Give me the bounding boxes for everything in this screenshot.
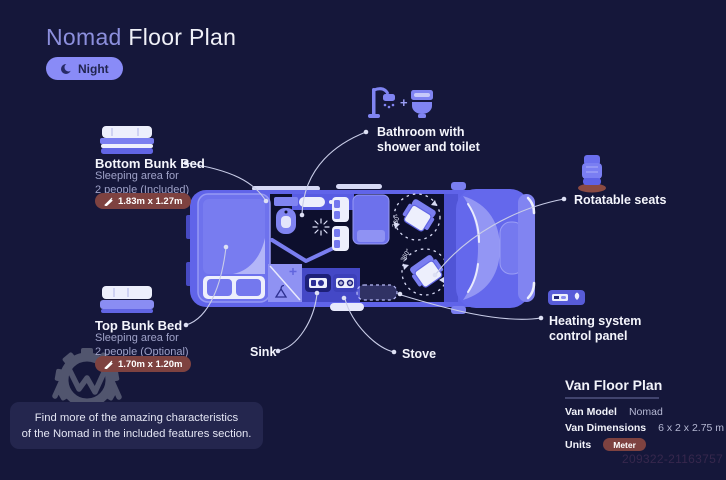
van-dimensions-value: 6 x 2 x 2.75 m <box>658 422 724 434</box>
bunk-bed-icon <box>98 125 156 155</box>
units-badge: Meter <box>603 438 646 451</box>
van-dimensions-label: Van Dimensions <box>565 422 646 434</box>
info-panel-title: Van Floor Plan <box>565 377 662 393</box>
stove-unit <box>333 274 357 292</box>
top-bunk-dimensions-badge: 1.70m x 1.20m <box>95 356 191 372</box>
stove-label: Stove <box>402 347 436 362</box>
ruler-icon <box>104 360 113 369</box>
sink-label: Sink <box>250 345 276 360</box>
bottom-bunk-dimensions-badge: 1.83m x 1.27m <box>95 193 191 209</box>
bathroom-label-line2: shower and toilet <box>377 140 480 155</box>
van-model-label: Van Model <box>565 406 617 418</box>
plus-icon: + <box>400 95 408 110</box>
page-title-accent: Nomad <box>46 24 122 50</box>
page-title: Nomad Floor Plan <box>46 24 236 51</box>
bottom-bunk-dimensions: 1.83m x 1.27m <box>118 196 182 207</box>
note-line2: of the Nomad in the included features se… <box>22 426 252 442</box>
bottom-bunk-title: Bottom Bunk Bed <box>95 156 205 171</box>
night-mode-toggle[interactable]: Night <box>46 57 123 80</box>
info-row-units: Units Meter <box>565 438 646 451</box>
bed-area <box>198 194 270 302</box>
top-bunk-dimensions: 1.70m x 1.20m <box>118 359 182 370</box>
top-bunk-desc-line1: Sleeping area for <box>95 332 189 346</box>
bunk-bed-icon <box>98 284 156 314</box>
sink-unit <box>305 274 331 292</box>
van-cab <box>444 182 535 314</box>
watermark-id-text: 209322-21163757 <box>622 452 723 466</box>
heating-panel-outline <box>357 285 397 300</box>
note-line1: Find more of the amazing characteristics <box>35 410 238 426</box>
heating-panel-icon <box>548 290 585 305</box>
toilet-icon <box>411 90 433 118</box>
heating-label-line2: control panel <box>549 329 641 344</box>
ruler-icon <box>104 197 113 206</box>
van-illustration: 360° 360° <box>186 182 535 314</box>
van-model-value: Nomad <box>629 406 663 418</box>
bathroom-label-line1: Bathroom with <box>377 125 480 140</box>
page: 360° 360° <box>0 0 726 480</box>
night-mode-label: Night <box>78 62 109 76</box>
rotatable-seats-label: Rotatable seats <box>574 193 666 208</box>
page-title-rest: Floor Plan <box>122 24 237 50</box>
bottom-bunk-desc-line1: Sleeping area for <box>95 170 189 184</box>
info-row-van-model: Van Model Nomad <box>565 406 663 418</box>
info-row-van-dimensions: Van Dimensions 6 x 2 x 2.75 m <box>565 422 724 434</box>
note-box: Find more of the amazing characteristics… <box>10 402 263 449</box>
heating-label-line1: Heating system <box>549 314 641 329</box>
shower-icon <box>368 88 395 118</box>
moon-icon <box>60 63 72 75</box>
rotatable-seat-icon <box>578 155 606 193</box>
info-panel-divider <box>565 397 659 399</box>
top-bunk-title: Top Bunk Bed <box>95 318 182 333</box>
units-label: Units <box>565 439 591 451</box>
